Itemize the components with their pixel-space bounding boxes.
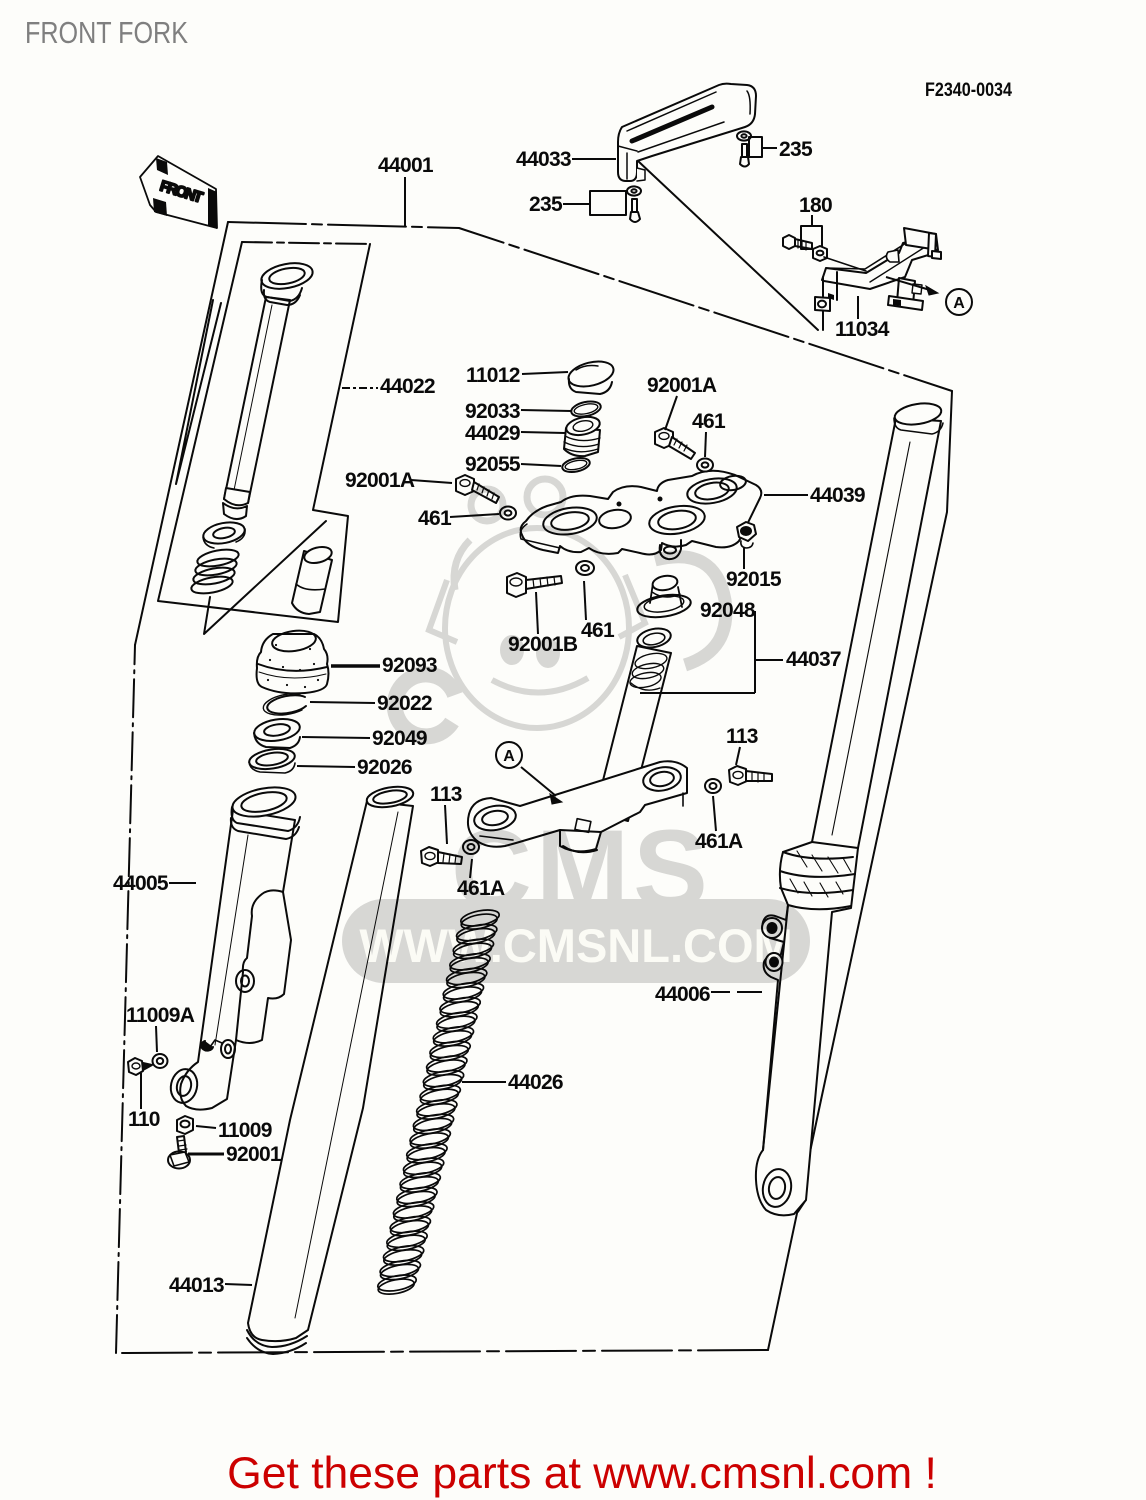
svg-text:11012: 11012 (466, 364, 520, 387)
svg-text:44006: 44006 (655, 983, 710, 1006)
svg-text:44022: 44022 (380, 375, 435, 398)
svg-text:235: 235 (779, 138, 813, 161)
svg-text:180: 180 (799, 194, 832, 217)
svg-text:461: 461 (692, 410, 726, 433)
svg-text:44039: 44039 (810, 484, 865, 507)
svg-text:11034: 11034 (835, 318, 890, 341)
svg-text:44001: 44001 (378, 154, 434, 177)
svg-text:WWW.CMSNL.COM: WWW.CMSNL.COM (359, 919, 792, 972)
svg-text:A: A (953, 295, 965, 312)
svg-text:44033: 44033 (516, 148, 571, 171)
svg-text:110: 110 (128, 1108, 160, 1131)
svg-text:A: A (503, 748, 515, 765)
svg-text:113: 113 (430, 783, 462, 806)
svg-text:461: 461 (581, 619, 615, 642)
svg-text:92001A: 92001A (345, 469, 415, 492)
svg-text:Get these parts at www.cmsnl.c: Get these parts at www.cmsnl.com ! (227, 1449, 937, 1498)
svg-text:92001A: 92001A (647, 374, 717, 397)
svg-text:F2340-0034: F2340-0034 (925, 80, 1012, 101)
svg-text:235: 235 (529, 193, 563, 216)
svg-text:44005: 44005 (113, 872, 169, 895)
svg-text:113: 113 (726, 725, 758, 748)
svg-text:92055: 92055 (465, 453, 521, 476)
svg-text:44013: 44013 (169, 1274, 224, 1297)
svg-text:FRONT FORK: FRONT FORK (25, 16, 188, 50)
svg-text:92033: 92033 (465, 400, 520, 423)
svg-text:11009: 11009 (218, 1119, 272, 1142)
svg-text:461: 461 (418, 507, 452, 530)
svg-text:44029: 44029 (465, 422, 520, 445)
svg-text:44026: 44026 (508, 1071, 563, 1094)
svg-text:92026: 92026 (357, 756, 412, 779)
svg-text:92001: 92001 (226, 1143, 282, 1166)
svg-text:11009A: 11009A (126, 1004, 195, 1027)
svg-text:44037: 44037 (786, 648, 841, 671)
svg-text:92015: 92015 (726, 568, 782, 591)
